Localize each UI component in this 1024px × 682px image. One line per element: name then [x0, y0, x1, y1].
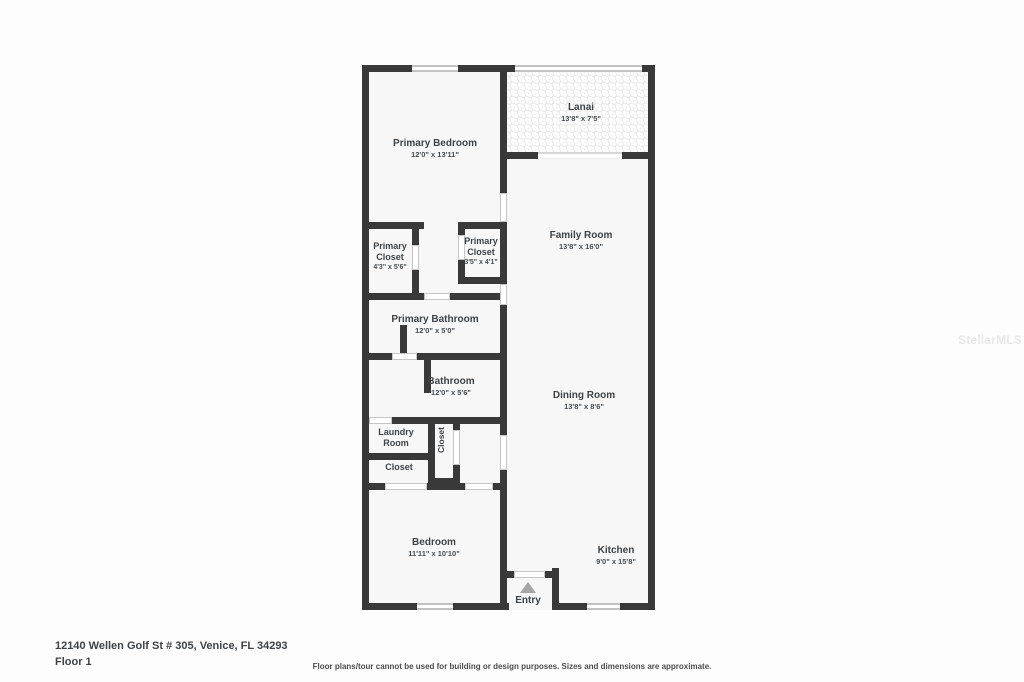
wall: [450, 293, 500, 300]
wall: [552, 568, 559, 610]
room-label-primary-bedroom: Primary Bedroom 12'0" x 13'11": [393, 138, 477, 159]
door-opening: [424, 293, 450, 300]
room-name: Closet: [385, 462, 413, 473]
room-name: Entry: [515, 595, 541, 606]
disclaimer-text: Floor plans/tour cannot be used for buil…: [313, 662, 712, 671]
room-dims: 11'11" x 10'10": [408, 549, 460, 558]
room-name: Kitchen: [596, 545, 636, 556]
room-dims: 4'3" x 5'6": [360, 263, 420, 272]
room-label-kitchen: Kitchen 9'0" x 15'8": [596, 545, 636, 566]
floorplan-page: Primary Bedroom 12'0" x 13'11" Lanai 13'…: [0, 0, 1024, 682]
wall: [392, 417, 500, 424]
room-label-bathroom: Bathroom 12'0" x 5'6": [427, 376, 474, 397]
room-dims: 12'0" x 5'0": [391, 326, 478, 335]
window: [515, 65, 642, 72]
door-opening: [369, 417, 392, 424]
room-label-dining-room: Dining Room 13'8" x 8'6": [553, 390, 615, 411]
room-name: Family Room: [550, 230, 613, 241]
door-opening: [392, 353, 417, 360]
wall: [507, 571, 514, 578]
room-dims: 12'0" x 5'6": [427, 388, 474, 397]
room-label-closet-small: Closet: [385, 462, 413, 473]
room-name: Lanai: [561, 102, 601, 113]
room-label-primary-closet-left: Primary Closet 4'3" x 5'6": [360, 241, 420, 272]
room-label-primary-bathroom: Primary Bathroom 12'0" x 5'0": [391, 314, 478, 335]
room-label-family-room: Family Room 13'8" x 16'0": [550, 230, 613, 251]
wall: [362, 453, 435, 460]
window: [587, 603, 620, 610]
wall: [622, 152, 655, 159]
room-dims: 9'0" x 15'8": [596, 557, 636, 566]
wall: [362, 65, 369, 610]
floor-label: Floor 1: [55, 656, 92, 668]
room-dims: 13'8" x 16'0": [550, 242, 613, 251]
wall: [417, 353, 500, 360]
room-label-laundry-room: Laundry Room: [366, 427, 426, 448]
room-name: Laundry Room: [366, 427, 426, 448]
room-name: Bedroom: [408, 537, 460, 548]
wall: [500, 305, 507, 435]
room-dims: 3'5" x 4'1": [451, 258, 511, 267]
wall: [427, 483, 465, 490]
room-name: Primary Bedroom: [393, 138, 477, 149]
wall: [493, 483, 507, 490]
door-opening: [500, 193, 507, 222]
door-opening: [514, 571, 545, 578]
room-name: Bathroom: [427, 376, 474, 387]
room-dims: 12'0" x 13'11": [393, 150, 477, 159]
wall: [500, 470, 507, 610]
wall: [648, 65, 655, 610]
sliding-door: [538, 152, 622, 159]
room-dims: 13'8" x 7'5": [561, 114, 601, 123]
wall: [362, 293, 424, 300]
room-label-primary-closet-right: Primary Closet 3'5" x 4'1": [451, 236, 511, 267]
room-name: Primary Closet: [451, 236, 511, 257]
entry-arrow-icon: [520, 582, 536, 593]
wall: [500, 65, 507, 193]
room-name: Dining Room: [553, 390, 615, 401]
property-address: 12140 Wellen Golf St # 305, Venice, FL 3…: [55, 640, 288, 652]
room-label-bedroom: Bedroom 11'11" x 10'10": [408, 537, 460, 558]
wall: [453, 417, 460, 430]
door-opening: [385, 483, 427, 490]
door-opening: [453, 430, 460, 465]
window: [412, 65, 458, 72]
room-name: Primary Bathroom: [391, 314, 478, 325]
room-dims: 13'8" x 8'6": [553, 402, 615, 411]
room-label-closet-hall: Closet: [436, 427, 446, 453]
wall: [362, 483, 385, 490]
door-opening: [500, 435, 507, 470]
wall: [458, 277, 500, 284]
room-name: Primary Closet: [360, 241, 420, 262]
wall: [507, 152, 538, 159]
door-opening: [465, 483, 493, 490]
window: [417, 603, 453, 610]
mls-watermark: StellarMLS: [958, 333, 1022, 347]
room-label-lanai: Lanai 13'8" x 7'5": [561, 102, 601, 123]
wall: [362, 353, 392, 360]
room-label-entry: Entry: [515, 595, 541, 606]
wall: [458, 222, 465, 235]
door-opening: [500, 284, 507, 305]
